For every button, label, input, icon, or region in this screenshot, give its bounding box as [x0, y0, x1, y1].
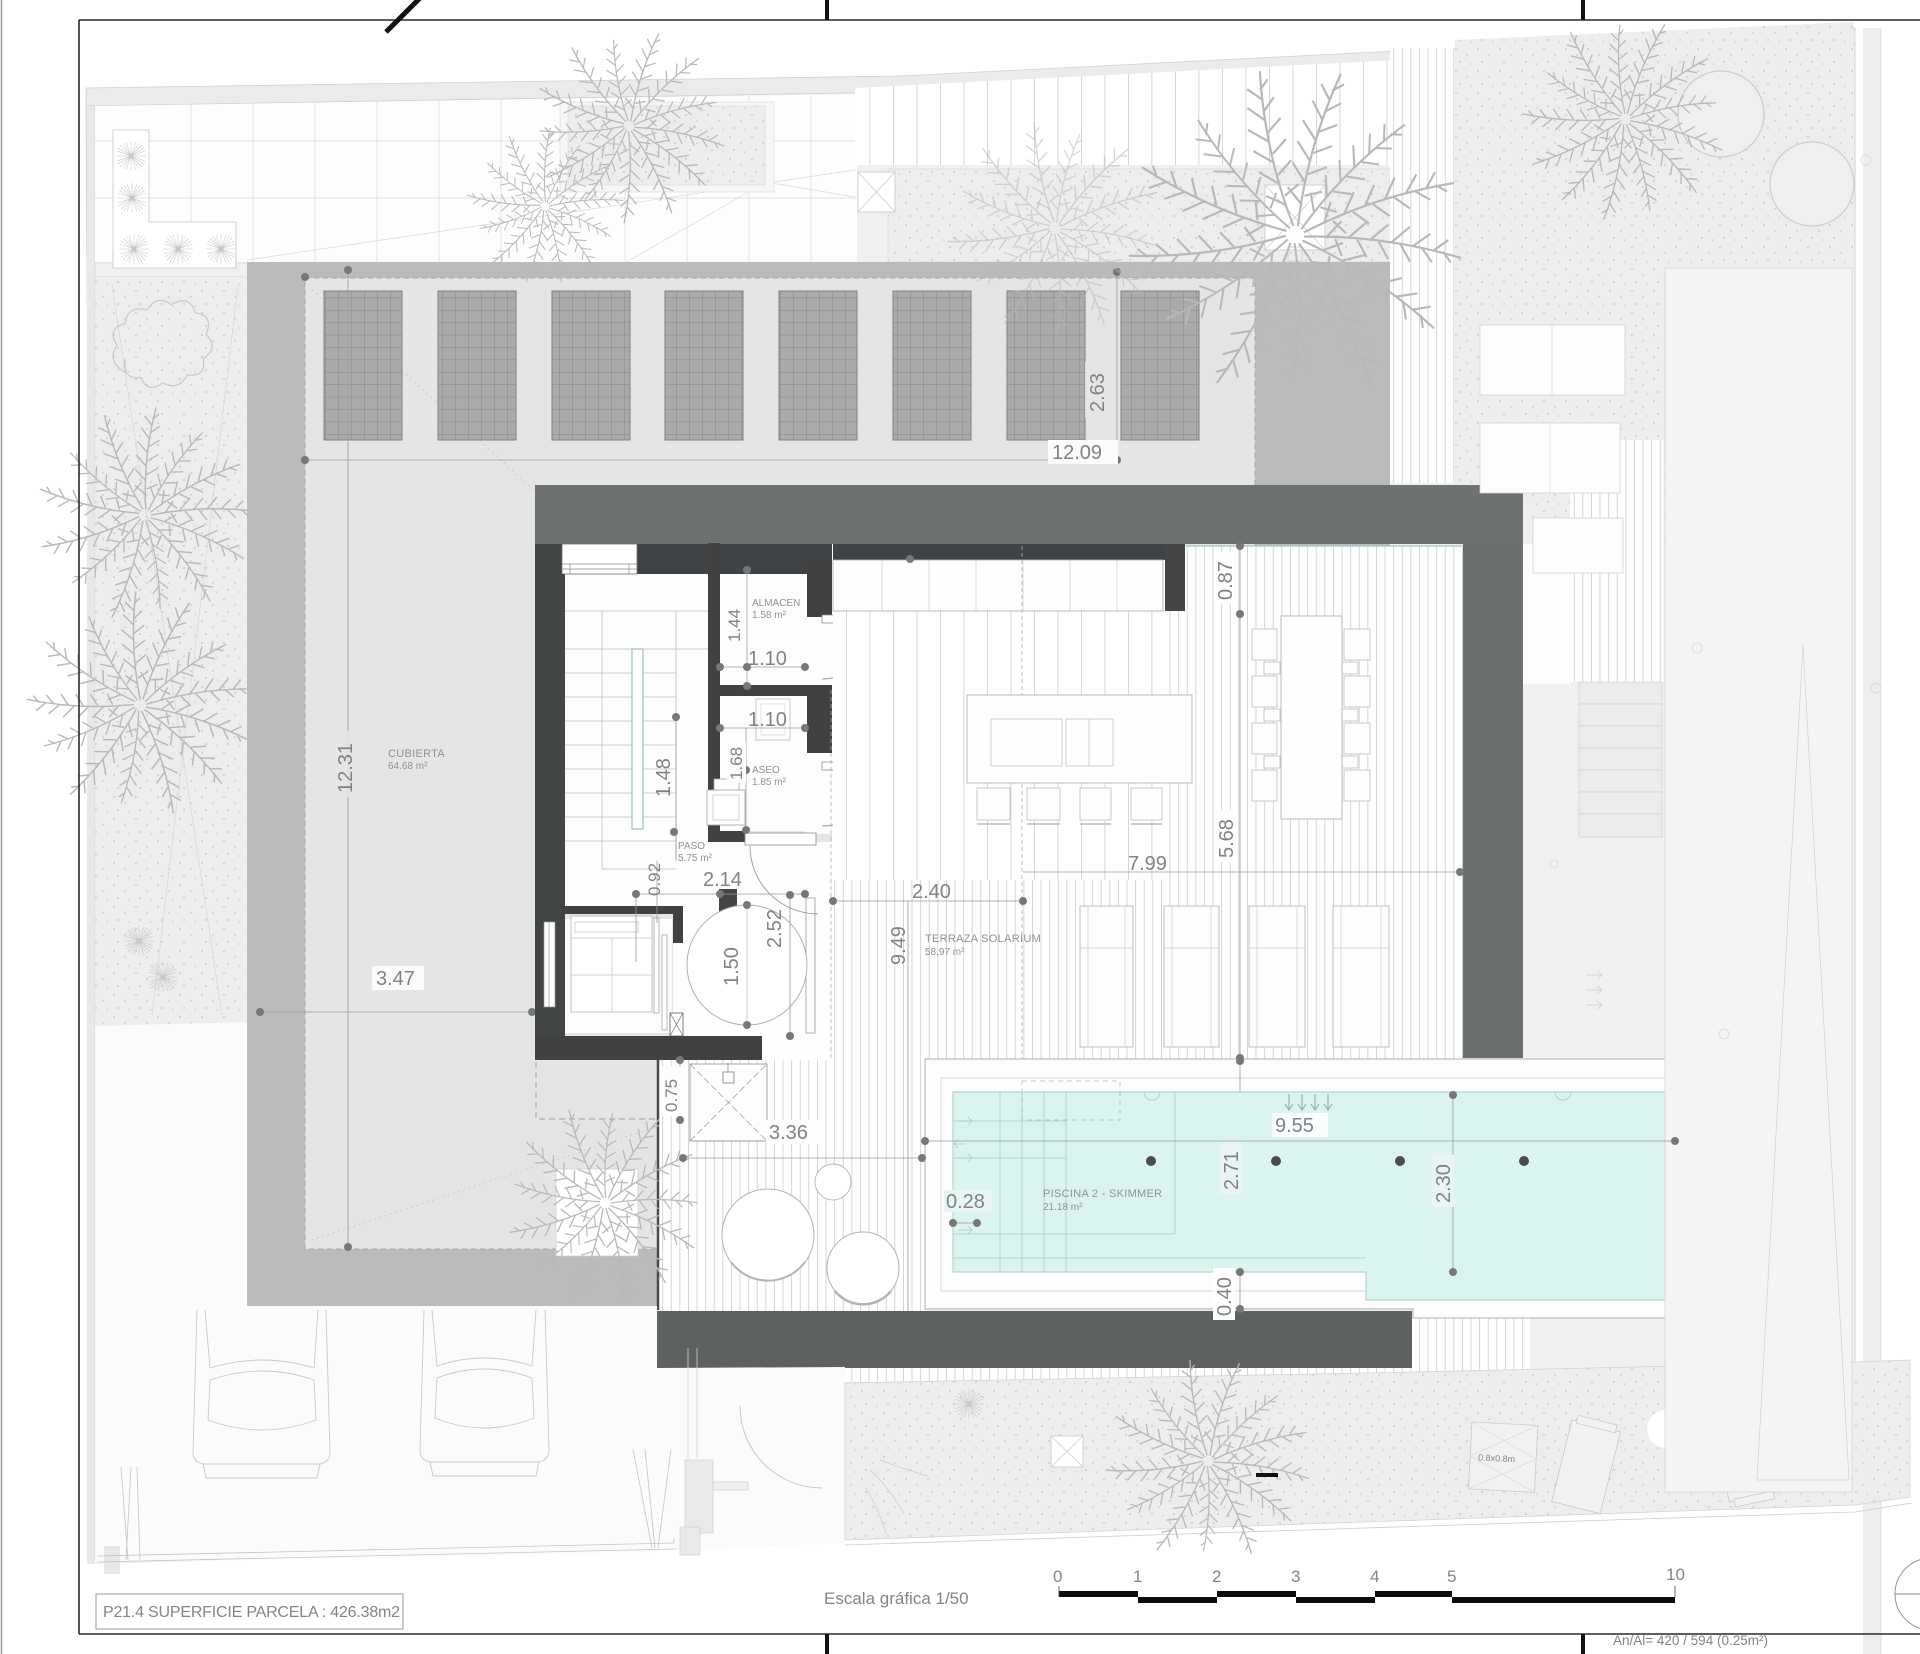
svg-text:1.85 m²: 1.85 m²	[752, 777, 787, 788]
svg-text:0.92: 0.92	[645, 863, 664, 896]
svg-text:5.68: 5.68	[1216, 819, 1238, 858]
svg-text:2.71: 2.71	[1221, 1151, 1243, 1190]
svg-text:PISCINA 2 - SKIMMER: PISCINA 2 - SKIMMER	[1043, 1188, 1162, 1200]
svg-text:3.36: 3.36	[769, 1122, 808, 1144]
svg-text:1.58 m²: 1.58 m²	[752, 610, 787, 621]
svg-text:3.47: 3.47	[376, 968, 415, 990]
svg-text:9.49: 9.49	[888, 926, 910, 965]
svg-text:7.99: 7.99	[1128, 853, 1167, 875]
svg-text:64.68 m²: 64.68 m²	[388, 761, 428, 772]
svg-text:1.10: 1.10	[748, 709, 787, 731]
svg-text:2.14: 2.14	[703, 869, 742, 891]
svg-text:2.30: 2.30	[1433, 1164, 1455, 1203]
svg-text:4: 4	[1370, 1567, 1379, 1586]
svg-text:ASEO: ASEO	[752, 765, 780, 776]
svg-text:Escala gráfica 1/50: Escala gráfica 1/50	[824, 1589, 969, 1608]
svg-text:PASO: PASO	[678, 841, 705, 852]
svg-text:12.31: 12.31	[335, 743, 357, 793]
svg-text:1.10: 1.10	[748, 648, 787, 670]
svg-text:0.8x0.8m: 0.8x0.8m	[1478, 1452, 1516, 1464]
svg-text:ALMACEN: ALMACEN	[752, 598, 800, 609]
svg-text:21.18 m²: 21.18 m²	[1043, 1202, 1083, 1213]
svg-text:P21.4 SUPERFICIE PARCELA : 42: P21.4 SUPERFICIE PARCELA : 426.38m2	[103, 1604, 400, 1621]
svg-text:TERRAZA SOLARIUM: TERRAZA SOLARIUM	[925, 933, 1041, 945]
svg-text:9.55: 9.55	[1275, 1115, 1314, 1137]
svg-text:5: 5	[1447, 1567, 1456, 1586]
svg-text:2: 2	[1212, 1567, 1221, 1586]
svg-text:3: 3	[1291, 1567, 1300, 1586]
svg-text:10: 10	[1666, 1565, 1685, 1584]
svg-text:0.75: 0.75	[662, 1079, 681, 1112]
svg-text:12.09: 12.09	[1052, 442, 1102, 464]
svg-text:1: 1	[1133, 1567, 1142, 1586]
svg-text:1.44: 1.44	[725, 609, 744, 642]
svg-text:1.50: 1.50	[721, 947, 743, 986]
svg-text:2.52: 2.52	[764, 909, 786, 948]
svg-text:2.63: 2.63	[1087, 373, 1109, 412]
svg-text:1.48: 1.48	[653, 758, 675, 797]
svg-text:2.40: 2.40	[912, 881, 951, 903]
svg-text:58.97 m²: 58.97 m²	[925, 947, 965, 958]
svg-text:CUBIERTA: CUBIERTA	[388, 748, 445, 760]
svg-text:0.87: 0.87	[1215, 561, 1237, 600]
svg-text:0.28: 0.28	[946, 1191, 985, 1213]
svg-text:0.40: 0.40	[1214, 1277, 1236, 1316]
svg-text:0: 0	[1053, 1567, 1062, 1586]
svg-text:1.68: 1.68	[727, 747, 746, 780]
svg-text:5.75 m²: 5.75 m²	[678, 853, 713, 864]
svg-text:An/Al= 420 / 594 (0.25m²): An/Al= 420 / 594 (0.25m²)	[1613, 1633, 1768, 1648]
